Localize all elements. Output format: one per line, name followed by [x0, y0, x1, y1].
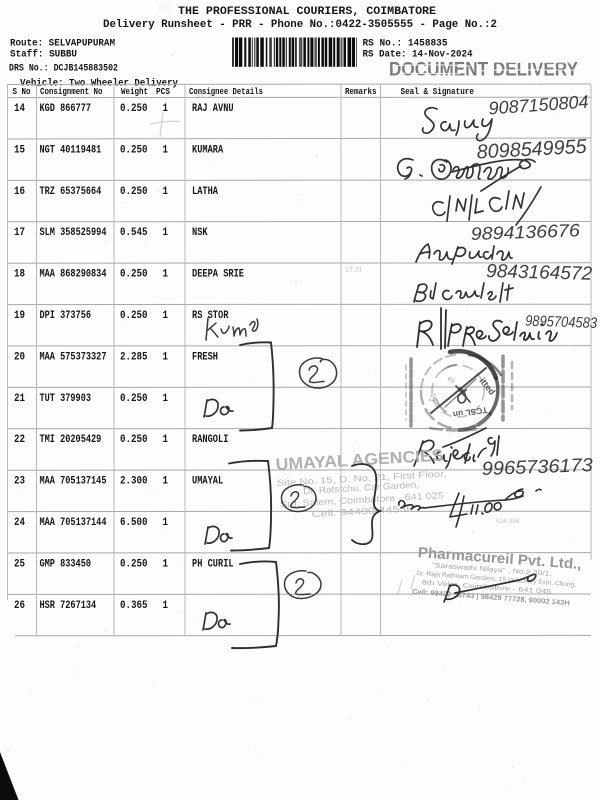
svg-text:1: 1	[163, 600, 169, 612]
svg-text:DPI 373756: DPI 373756	[40, 310, 92, 322]
svg-text:DRS No.: DCJB145883502: DRS No.: DCJB145883502	[9, 63, 118, 75]
svg-text:Seal & Signature: Seal & Signature	[401, 87, 475, 97]
svg-text:HSR 7267134: HSR 7267134	[40, 600, 97, 612]
svg-text:1: 1	[163, 144, 169, 156]
svg-text:0.250: 0.250	[120, 186, 148, 198]
svg-text:19: 19	[14, 310, 25, 322]
svg-text:░░░: ░░░	[157, 2, 173, 13]
svg-text:24: 24	[14, 517, 25, 529]
svg-text:0.365: 0.365	[120, 600, 148, 612]
svg-text:1: 1	[163, 476, 169, 488]
svg-text:LATHA: LATHA	[192, 186, 218, 198]
svg-text:TUT 379903: TUT 379903	[40, 393, 92, 405]
svg-text:KGD 866777: KGD 866777	[40, 103, 92, 115]
svg-text:16: 16	[14, 186, 25, 198]
svg-text:0.250: 0.250	[120, 558, 148, 570]
svg-text:NGT 40119481: NGT 40119481	[40, 144, 102, 156]
svg-text:NSK: NSK	[192, 227, 208, 239]
svg-text:2.285: 2.285	[120, 351, 148, 363]
svg-text:Consignee Details: Consignee Details	[189, 87, 263, 97]
svg-text:Consignment No: Consignment No	[40, 87, 103, 97]
svg-text:Delivery Runsheet - PRR - Phon: Delivery Runsheet - PRR - Phone No.:0422…	[103, 19, 497, 31]
svg-text:0.250: 0.250	[120, 393, 148, 405]
svg-text:1: 1	[163, 351, 169, 363]
svg-text:9895704583: 9895704583	[525, 313, 598, 333]
svg-text:MAA 705137145: MAA 705137145	[40, 476, 107, 488]
svg-text:TRZ 65375664: TRZ 65375664	[40, 186, 102, 198]
svg-text:KUMARA: KUMARA	[192, 144, 224, 156]
svg-text:Staff: SUBBU: Staff: SUBBU	[10, 49, 77, 61]
svg-text:26: 26	[14, 600, 25, 612]
svg-text:0.545: 0.545	[120, 227, 148, 239]
svg-text:534 986: 534 986	[496, 518, 520, 525]
svg-text:RANGOLI: RANGOLI	[192, 434, 228, 446]
svg-text:1: 1	[163, 434, 169, 446]
svg-text:1: 1	[163, 227, 169, 239]
svg-text:1: 1	[163, 186, 169, 198]
svg-text:14: 14	[14, 103, 25, 115]
svg-text:20: 20	[14, 351, 25, 363]
svg-text:2.300: 2.300	[120, 476, 148, 488]
svg-text:0.250: 0.250	[120, 103, 148, 115]
svg-text:1: 1	[163, 310, 169, 322]
svg-text:Weight: Weight	[121, 87, 148, 97]
svg-text:Remarks: Remarks	[345, 87, 377, 97]
svg-text:17.31: 17.31	[345, 267, 363, 274]
svg-text:TMI 20205429: TMI 20205429	[40, 434, 102, 446]
svg-text:1: 1	[163, 269, 169, 281]
svg-text:MAA 575373327: MAA 575373327	[40, 351, 107, 363]
svg-text:PCS: PCS	[156, 87, 171, 97]
svg-text:RAJ AVNU: RAJ AVNU	[192, 103, 234, 115]
svg-text:0.250: 0.250	[120, 434, 148, 446]
svg-text:1: 1	[163, 393, 169, 405]
svg-text:15: 15	[14, 144, 25, 156]
svg-text:17: 17	[14, 227, 25, 239]
svg-text:RS STOR: RS STOR	[192, 310, 229, 322]
svg-text:6.500: 6.500	[120, 517, 148, 529]
svg-text:S No: S No	[13, 87, 31, 97]
svg-text:9894136676: 9894136676	[470, 220, 581, 244]
svg-text:0.250: 0.250	[120, 144, 148, 156]
svg-text:22: 22	[14, 434, 25, 446]
svg-text:23: 23	[14, 476, 25, 488]
svg-text:MAA 705137144: MAA 705137144	[40, 517, 107, 529]
svg-text:DEEPA SRIE: DEEPA SRIE	[192, 269, 244, 281]
svg-text:UMAYAL: UMAYAL	[192, 476, 224, 488]
svg-text:GMP 833450: GMP 833450	[40, 558, 92, 570]
svg-text:1: 1	[163, 558, 169, 570]
svg-text:0.250: 0.250	[120, 269, 148, 281]
svg-text:MAA 868290834: MAA 868290834	[40, 269, 107, 281]
svg-text:9965736173: 9965736173	[481, 455, 593, 480]
svg-text:FRESH: FRESH	[192, 351, 218, 363]
svg-text:21: 21	[14, 393, 25, 405]
svg-text:0.250: 0.250	[120, 310, 148, 322]
svg-text:18: 18	[14, 269, 25, 281]
svg-text:9843164572: 9843164572	[486, 261, 593, 285]
svg-text:25: 25	[14, 558, 25, 570]
svg-text:1: 1	[163, 517, 169, 529]
svg-text:THE PROFESSIONAL COURIERS, COI: THE PROFESSIONAL COURIERS, COIMBATORE	[178, 6, 436, 18]
svg-text:PH CURIL: PH CURIL	[192, 558, 234, 570]
svg-text:SLM 358525994: SLM 358525994	[40, 227, 107, 239]
